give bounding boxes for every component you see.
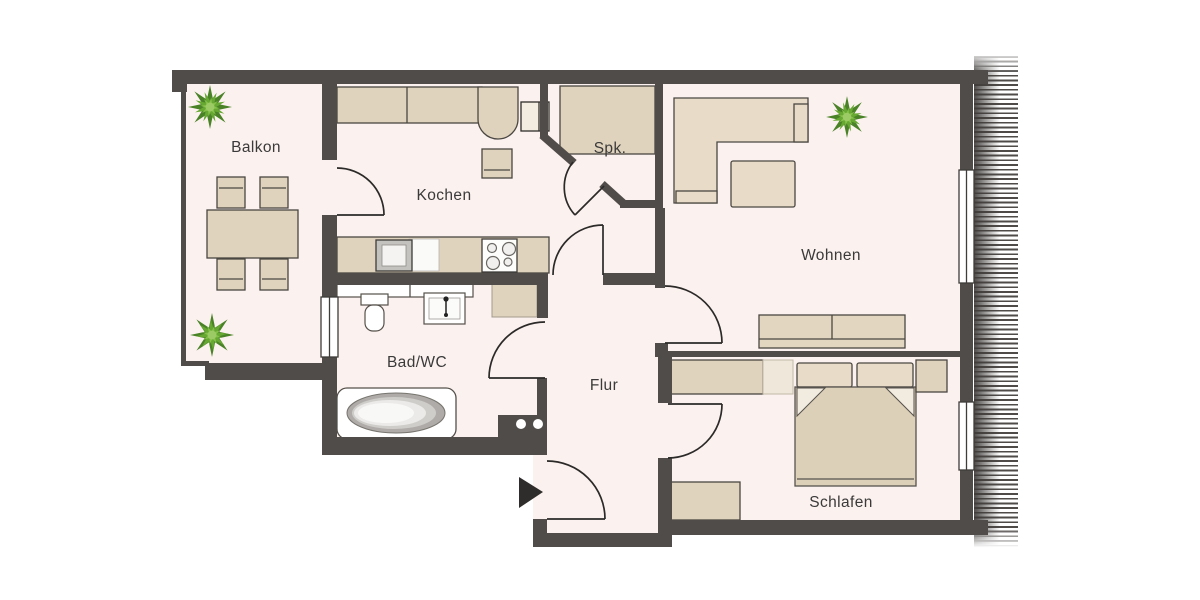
wall-east-a <box>960 84 973 170</box>
kitchen-peninsula-counter <box>478 87 518 139</box>
wall-west-a <box>322 84 337 160</box>
balcony-railing-west <box>181 84 186 366</box>
wall-dot <box>533 419 543 429</box>
bath-washer <box>492 281 537 317</box>
wall-balcony-south <box>205 363 332 380</box>
wall-bath-south <box>322 437 498 455</box>
bed-pillow <box>797 363 852 387</box>
balcony-chair <box>217 177 245 208</box>
wall-dot <box>516 419 526 429</box>
window-bath <box>321 297 338 357</box>
balcony-chair <box>260 177 288 208</box>
plant-icon <box>826 96 868 138</box>
wall-north <box>172 70 988 84</box>
bedroom-nightstand <box>916 360 947 392</box>
living-coffee-table <box>731 161 795 207</box>
wall-schlafen-south <box>658 520 988 535</box>
room-label-schlafen: Schlafen <box>809 494 873 511</box>
balcony-chair <box>260 259 288 290</box>
room-label-wohnen: Wohnen <box>801 247 861 264</box>
bedroom-wardrobe <box>668 360 763 394</box>
wall-wohnen-schlafen <box>665 351 962 357</box>
wall-spk-west <box>540 84 548 137</box>
balcony-railing-south <box>181 361 209 366</box>
balcony-table <box>207 210 298 258</box>
toilet <box>361 294 388 331</box>
wall-kochen-flur-west <box>322 273 548 285</box>
living-sofa <box>759 315 905 348</box>
wall-east-c <box>960 470 973 535</box>
bathtub <box>337 388 456 439</box>
kitchen-counter-top <box>337 87 482 123</box>
room-floor-flur-lower <box>533 455 672 535</box>
room-label-flur: Flur <box>590 377 618 394</box>
window-wohnen <box>959 170 974 283</box>
wall-west-b <box>322 215 337 298</box>
room-label-spk: Spk. <box>594 140 627 157</box>
bedroom-wardrobe-light <box>763 360 793 394</box>
kitchen-stove <box>482 239 517 272</box>
bed-pillow <box>857 363 913 387</box>
window-schlafen <box>959 402 974 470</box>
wall-bath-flur-a <box>537 273 548 318</box>
room-label-kochen: Kochen <box>417 187 472 204</box>
wall-spk-east <box>655 84 663 208</box>
wall-flur-south <box>538 533 672 547</box>
plant-icon <box>188 85 232 129</box>
wall-flur-schlafen-a <box>658 355 672 403</box>
bedroom-dresser <box>668 482 740 520</box>
floorplan-canvas: Balkon Kochen Spk. Wohnen Bad/WC Flur Sc… <box>0 0 1200 600</box>
wall-spk-south <box>620 200 663 208</box>
kitchen-chair <box>482 149 512 178</box>
floorplan-drawing: Balkon Kochen Spk. Wohnen Bad/WC Flur Sc… <box>0 0 1200 600</box>
room-label-bad-wc: Bad/WC <box>387 354 447 371</box>
room-label-balkon: Balkon <box>231 139 281 156</box>
bath-sink <box>424 293 465 324</box>
wall-east-b <box>960 283 973 402</box>
kitchen-sink <box>376 240 412 271</box>
balcony-chair <box>217 259 245 290</box>
kitchen-dishwasher <box>409 239 439 271</box>
wall-bath-flur-b <box>537 378 547 415</box>
wall-flur-wohnen <box>655 208 665 288</box>
wall-west-c <box>322 357 337 437</box>
